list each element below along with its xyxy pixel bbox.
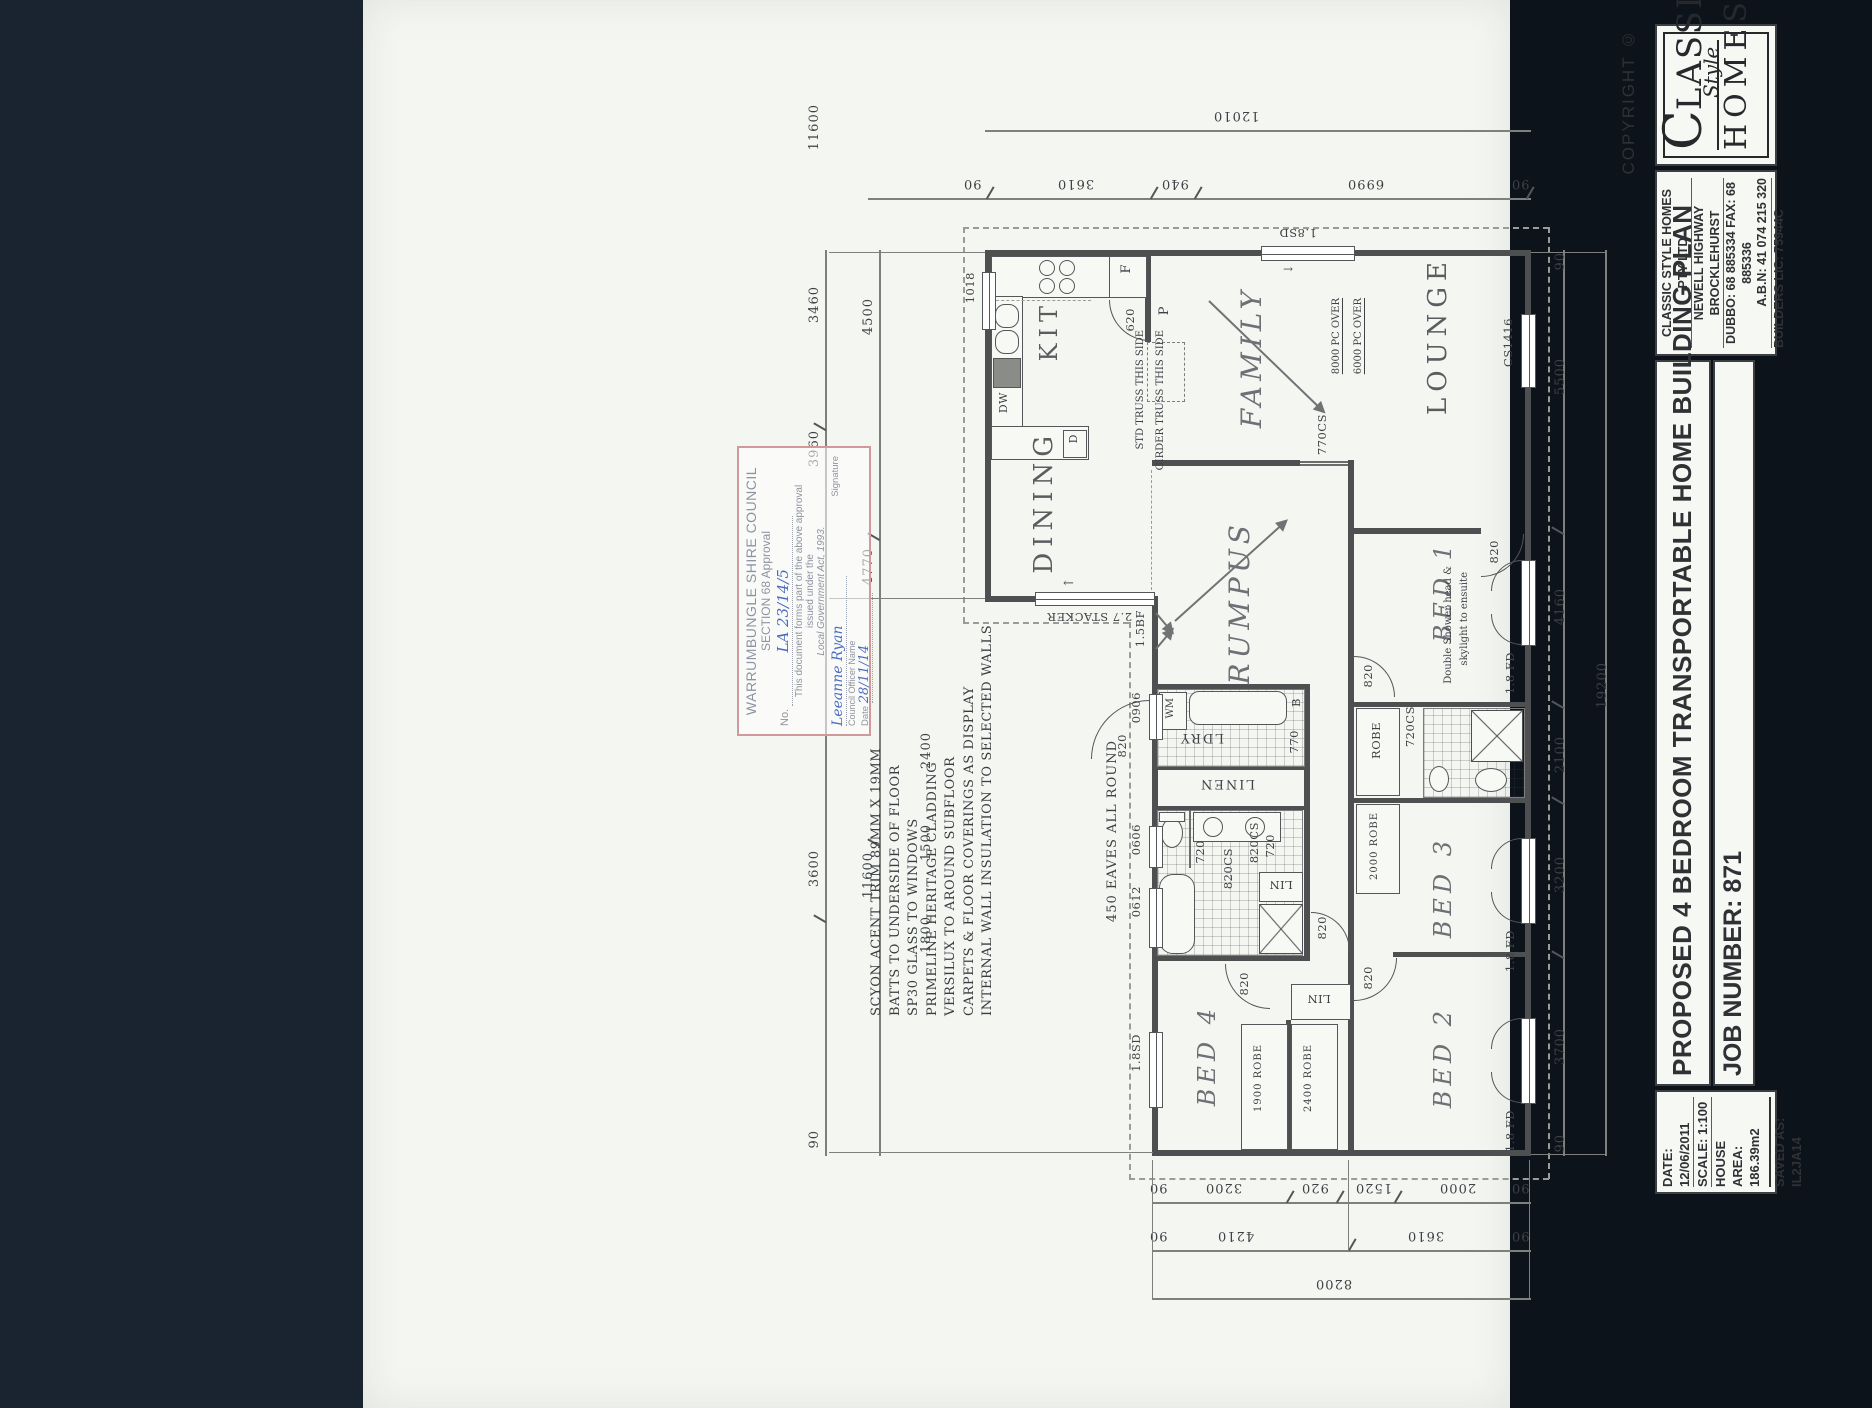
hall-bed2-door-code: 820 bbox=[1361, 966, 1375, 989]
dim-top-3610: 3610 bbox=[1057, 176, 1094, 191]
vanity-basin bbox=[1203, 817, 1223, 837]
pantry-door-code: 620 bbox=[1123, 308, 1137, 331]
wall-bathstrip-bottom bbox=[1152, 956, 1310, 961]
ext-line bbox=[1529, 1160, 1530, 1300]
stamp-no-value: LA 23/14/5 bbox=[774, 569, 792, 652]
plan-details-box: DATE: 12/06/2011 SCALE: 1:100 HOUSE AREA… bbox=[1655, 1090, 1777, 1194]
shower-bath bbox=[1259, 904, 1303, 954]
bath-window-code: 820CS bbox=[1221, 848, 1235, 889]
bathtub bbox=[1159, 874, 1195, 954]
wc-toilet bbox=[1161, 818, 1183, 848]
dim-right-5500: 5500 bbox=[1553, 358, 1568, 395]
truss-girder-note: GIRDER TRUSS THIS SIDE bbox=[1155, 330, 1166, 470]
kitchen-label: KIT bbox=[1035, 300, 1063, 361]
wc-door-code: 720 bbox=[1193, 840, 1207, 863]
job-number: JOB NUMBER: 871 bbox=[1715, 362, 1752, 1084]
window-0612 bbox=[1149, 888, 1163, 948]
cased-opening-770 bbox=[1300, 461, 1352, 463]
spec-note-line: VERSILUX TO AROUND SUBFLOOR bbox=[942, 564, 961, 1016]
dim-right-90b: 90 bbox=[1553, 1134, 1568, 1153]
job-number-box: JOB NUMBER: 871 bbox=[1713, 360, 1755, 1086]
hall-bed1-door-code: 820 bbox=[1361, 664, 1375, 687]
detail-line: DATE: 12/06/2011 bbox=[1659, 1097, 1694, 1187]
fridge-label: F bbox=[1119, 264, 1134, 274]
cooktop-burner bbox=[1039, 278, 1055, 294]
cooktop-burner bbox=[1059, 278, 1075, 294]
dim-top-90: 90 bbox=[963, 176, 982, 191]
window-18sd-top-code: 1.8SD bbox=[1279, 226, 1317, 240]
hall-bed4-door-code: 820 bbox=[1237, 972, 1251, 995]
window-18sd-top bbox=[1261, 246, 1355, 261]
bed1-robe-label: ROBE bbox=[1369, 722, 1383, 759]
lounge-label: LOUNGE bbox=[1423, 256, 1453, 415]
window-fd-bed1 bbox=[1521, 560, 1536, 646]
dim-bot1-2000: 2000 bbox=[1439, 1180, 1476, 1195]
plan-title: PROPOSED 4 BEDROOM TRANSPORTABLE HOME BU… bbox=[1657, 362, 1708, 1084]
window-0612-code: 0612 bbox=[1129, 886, 1143, 917]
truss-std-note: STD TRUSS THIS SIDE bbox=[1135, 330, 1146, 450]
dining-label: DINING bbox=[1029, 430, 1059, 574]
ensuite-door-code: 720CS bbox=[1403, 706, 1417, 747]
logo-style: Style bbox=[1699, 47, 1723, 98]
company-line: BUILDERS LIC: 75944C bbox=[1772, 178, 1788, 348]
company-line: DUBBO: 68 885334 FAX: 68 885336 bbox=[1724, 178, 1755, 348]
ensuite-note-1: Double Shower head & bbox=[1443, 566, 1454, 684]
stamp-no-label: No. bbox=[779, 709, 791, 726]
dim-line bbox=[1152, 1250, 1531, 1252]
dim-bot2-90b: 90 bbox=[1511, 1228, 1530, 1243]
ext-line bbox=[829, 252, 985, 253]
hall-bed3-door-code: 820 bbox=[1315, 916, 1329, 939]
dim-top-940: 940 bbox=[1161, 176, 1189, 191]
window-fd-bed3-code: 1.8 FD bbox=[1503, 930, 1517, 972]
wc-cistern bbox=[1159, 812, 1185, 822]
logo-letter-c: C bbox=[1654, 110, 1714, 150]
wall-bottom bbox=[1152, 1150, 1531, 1156]
truss-line bbox=[1151, 470, 1152, 590]
dim-left-4500: 4500 bbox=[861, 298, 876, 335]
spec-note-line: BATTS TO UNDERSIDE OF FLOOR bbox=[887, 564, 906, 1016]
rumpus-label: RUMPUS bbox=[1223, 520, 1256, 684]
cupboard-d-label: D bbox=[1067, 434, 1080, 443]
copyright-note: COPYRIGHT © bbox=[1619, 28, 1639, 174]
stamp-body-1: This document forms part of the above ap… bbox=[794, 456, 805, 726]
lin-cupboard-bath-label: LIN bbox=[1269, 878, 1293, 892]
spec-note-line: SP30 GLASS TO WINDOWS bbox=[905, 564, 924, 1016]
bath-door-code: 720 bbox=[1263, 834, 1277, 857]
cooktop-burner bbox=[1039, 260, 1055, 276]
spec-notes: SCYON ACENT TRIM 89MM X 19MM BATTS TO UN… bbox=[868, 564, 1000, 1016]
dim-line bbox=[985, 130, 1531, 132]
stamp-officer-name: Leeanne Ryan bbox=[830, 625, 846, 726]
dim-line bbox=[868, 198, 1531, 200]
ext-line bbox=[1531, 252, 1607, 253]
laundry-label: LDRY bbox=[1179, 730, 1224, 745]
window-fd-bed2 bbox=[1521, 1018, 1536, 1104]
pc-6000-note: 6000 PC OVER bbox=[1353, 298, 1364, 374]
dim-top-overall: 12010 bbox=[1213, 108, 1259, 123]
window-fd-bed2-code: 1.8 FD bbox=[1503, 1110, 1517, 1152]
family-label: FAMILY bbox=[1235, 286, 1268, 428]
dim-right-3700: 3700 bbox=[1553, 1028, 1568, 1065]
bed2-robe-label: 2400 ROBE bbox=[1303, 1044, 1327, 1112]
cooktop-burner bbox=[1059, 260, 1075, 276]
pantry-cupboard bbox=[1147, 342, 1185, 402]
dim-right-4160: 4160 bbox=[1553, 588, 1568, 625]
dim-top-90b: 90 bbox=[1511, 176, 1530, 191]
company-line: A.B.N: 41 074 215 320 bbox=[1755, 178, 1772, 348]
wall-family-rumpus bbox=[1152, 460, 1300, 466]
stamp-body-3: Local Government Act, 1993. bbox=[816, 456, 827, 726]
bath-window-code2: 820CS bbox=[1247, 822, 1261, 863]
fd-leaf bbox=[1491, 838, 1522, 869]
window-fd-bed1-code: 1.8 FD bbox=[1503, 652, 1517, 694]
dim-bot2-4210: 4210 bbox=[1217, 1228, 1254, 1243]
window-0606 bbox=[1149, 826, 1163, 868]
dim-left-90: 90 bbox=[807, 1130, 822, 1149]
window-1018 bbox=[982, 272, 996, 330]
window-1018-code: 1018 bbox=[963, 272, 977, 303]
spec-note-line: INTERNAL WALL INSULATION TO SELECTED WAL… bbox=[979, 564, 998, 1016]
dim-right-90: 90 bbox=[1553, 252, 1568, 271]
wall-ensuite-bed3 bbox=[1354, 798, 1525, 803]
dim-right-2100: 2100 bbox=[1553, 736, 1568, 773]
dishwasher bbox=[993, 358, 1021, 388]
dim-right-overall: 19200 bbox=[1595, 662, 1610, 708]
dim-right-3200: 3200 bbox=[1553, 856, 1568, 893]
window-18sd-bed4 bbox=[1149, 1032, 1163, 1108]
fd-leaf bbox=[1491, 614, 1522, 645]
ext-line bbox=[829, 1152, 1153, 1153]
bed2-label: BED 2 bbox=[1429, 1006, 1457, 1108]
window-18sd-bed4-code: 1.8SD bbox=[1129, 1034, 1143, 1072]
scan-margin-left bbox=[0, 0, 363, 1408]
window-fd-bed3 bbox=[1521, 838, 1536, 924]
detail-line: SAVED AS: IL2JA14 bbox=[1769, 1097, 1805, 1187]
bifold-code: 1.5BF bbox=[1133, 610, 1147, 647]
window-0906 bbox=[1149, 694, 1163, 740]
stamp-date-value: 28/11/14 bbox=[857, 645, 872, 703]
wm-label: WM bbox=[1165, 698, 1176, 719]
eaves-line-right bbox=[1548, 227, 1550, 1179]
drawing-sheet: F DW D KIT DINING P 620 STD TRUSS THIS S… bbox=[363, 0, 1510, 1408]
wall-rightwing-left bbox=[1348, 460, 1354, 1156]
stamp-section-line: SECTION 68 Approval bbox=[759, 456, 773, 726]
eaves-line-bottom bbox=[1129, 1178, 1549, 1180]
spec-note-line: PRIMELINE HERITAGE CLADDING bbox=[924, 564, 943, 1016]
stacker-door bbox=[1035, 592, 1155, 606]
bed3-label: BED 3 bbox=[1429, 836, 1457, 938]
window-18sd-arrow: → bbox=[1283, 262, 1294, 276]
dim-bot1-90b: 90 bbox=[1511, 1180, 1530, 1195]
cased-opening-770b bbox=[1300, 464, 1352, 466]
dim-line bbox=[1152, 1202, 1531, 1204]
hall-lin-label: LIN bbox=[1307, 992, 1331, 1006]
ext-line bbox=[1152, 1160, 1153, 1300]
scanned-floor-plan-page: { "title_block": { "copyright": "COPYRIG… bbox=[0, 0, 1872, 1408]
stamp-signature-label: Signature bbox=[830, 456, 847, 497]
window-0606-code: 0606 bbox=[1129, 824, 1143, 855]
dim-top-6990: 6990 bbox=[1347, 176, 1384, 191]
window-cs1416 bbox=[1521, 314, 1536, 388]
linen-label: LINEN bbox=[1199, 776, 1255, 791]
wall-bed1-ensuite bbox=[1354, 702, 1525, 707]
dim-bot1-3200: 3200 bbox=[1205, 1180, 1242, 1195]
fd-leaf bbox=[1491, 1072, 1522, 1103]
ensuite-toilet bbox=[1475, 768, 1507, 792]
laundry-tub bbox=[1189, 691, 1287, 725]
ext-line bbox=[1348, 1160, 1349, 1252]
laundry-door-code: 770 bbox=[1287, 730, 1301, 753]
dim-left-11600: 11600 bbox=[807, 104, 822, 150]
stamp-officer-label: Council Officer Name bbox=[847, 456, 857, 726]
eaves-note: 450 EAVES ALL ROUND bbox=[1105, 740, 1120, 922]
window-cs1416-code: CS1416 bbox=[1501, 318, 1515, 367]
company-logo-box: CLASSIC Style HOMES bbox=[1655, 24, 1777, 166]
fd-leaf bbox=[1491, 892, 1522, 923]
ensuite-note-2: skylight to ensuite bbox=[1459, 572, 1470, 666]
dim-bot2-3610: 3610 bbox=[1407, 1228, 1444, 1243]
fridge-space bbox=[1109, 256, 1147, 298]
bed3-robe-label: 2000 ROBE bbox=[1369, 812, 1393, 880]
dim-bottom-overall: 8200 bbox=[1315, 1276, 1352, 1291]
eaves-line-top bbox=[963, 227, 1549, 229]
council-stamp: WARRUMBUNGLE SHIRE COUNCIL SECTION 68 Ap… bbox=[737, 446, 871, 736]
pc-8000-note: 8000 PC OVER bbox=[1331, 298, 1342, 374]
lounge-bed1-door-code: 820 bbox=[1487, 540, 1501, 563]
plan-title-box: PROPOSED 4 BEDROOM TRANSPORTABLE HOME BU… bbox=[1655, 360, 1711, 1086]
wc-partition bbox=[1189, 810, 1191, 868]
window-0906-code: 0906 bbox=[1129, 692, 1143, 723]
shower-ensuite bbox=[1471, 710, 1523, 762]
pantry-label: P bbox=[1157, 306, 1172, 315]
stamp-council-line: WARRUMBUNGLE SHIRE COUNCIL bbox=[743, 456, 759, 726]
detail-line: SCALE: 1:100 bbox=[1694, 1097, 1712, 1187]
stacker-arrow: ← bbox=[1063, 576, 1074, 591]
dim-line bbox=[1152, 1298, 1531, 1300]
spec-note-line: CARPETS & FLOOR COVERINGS AS DISPLAY bbox=[961, 564, 980, 1016]
opening-770cs-code: 770CS bbox=[1315, 414, 1329, 455]
bed4-robe-label: 1900 ROBE bbox=[1253, 1044, 1277, 1112]
stamp-body-2: issued under the bbox=[805, 456, 816, 726]
sink-basin bbox=[995, 304, 1019, 328]
dim-left-3460: 3460 bbox=[807, 286, 822, 323]
ext-line bbox=[1531, 1154, 1607, 1155]
ensuite-basin bbox=[1429, 766, 1449, 792]
sink-basin bbox=[995, 330, 1019, 354]
fd-leaf bbox=[1491, 1018, 1522, 1049]
dim-bot1-920: 920 bbox=[1301, 1180, 1329, 1195]
stacker-code: 2.7 STACKER bbox=[1047, 610, 1132, 624]
dim-bot1-1520: 1520 bbox=[1355, 1180, 1392, 1195]
kit-dining-divider bbox=[991, 300, 1091, 301]
bed4-label: BED 4 bbox=[1193, 1004, 1221, 1106]
wall-lounge-bed1 bbox=[1354, 528, 1481, 534]
dishwasher-label: DW bbox=[997, 392, 1010, 413]
dim-left-3600: 3600 bbox=[807, 850, 822, 887]
tub-label: B bbox=[1289, 698, 1303, 707]
stamp-date-label: Date bbox=[860, 706, 871, 726]
detail-line: HOUSE AREA: 186.39m2 bbox=[1712, 1097, 1763, 1187]
